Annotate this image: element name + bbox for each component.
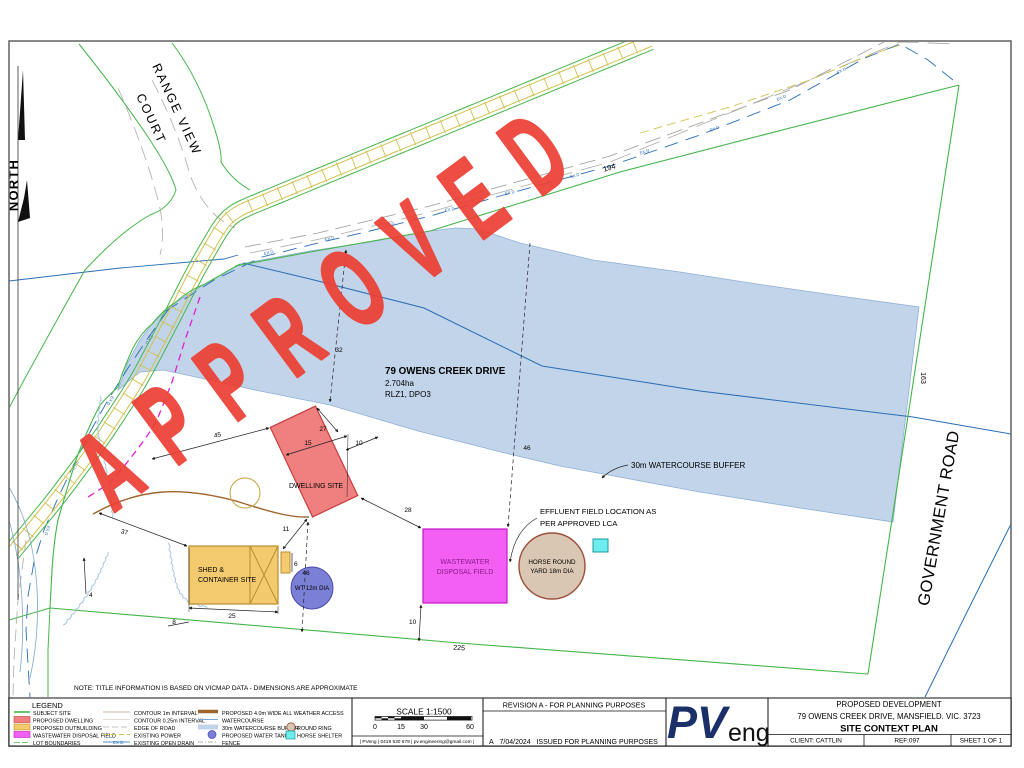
svg-text:REF:097: REF:097 — [894, 738, 920, 745]
svg-text:NOTE: TITLE INFORMATION IS BAS: NOTE: TITLE INFORMATION IS BASED ON VICM… — [74, 685, 358, 692]
svg-text:10: 10 — [355, 440, 363, 447]
svg-text:225: 225 — [453, 645, 465, 653]
svg-text:6: 6 — [294, 561, 298, 568]
svg-text:79 OWENS CREEK DRIVE: 79 OWENS CREEK DRIVE — [385, 366, 506, 377]
svg-text:46: 46 — [523, 445, 531, 452]
svg-text:EXISTING POWER: EXISTING POWER — [134, 734, 181, 740]
svg-text:30m WATERCOURSE BUFFER: 30m WATERCOURSE BUFFER — [631, 461, 745, 470]
svg-text:46: 46 — [302, 570, 310, 577]
svg-text:HORSE SHELTER: HORSE SHELTER — [297, 734, 342, 740]
svg-text:15: 15 — [397, 724, 405, 731]
svg-text:WT 12m DIA: WT 12m DIA — [295, 586, 329, 592]
svg-text:LOT BOUNDARIES: LOT BOUNDARIES — [33, 741, 81, 747]
svg-text:eng: eng — [728, 719, 770, 747]
svg-text:EX D: EX D — [113, 740, 124, 745]
svg-text:ROUND RING: ROUND RING — [297, 726, 332, 732]
svg-text:CONTAINER SITE: CONTAINER SITE — [198, 577, 257, 584]
svg-text:EXISTING OPEN DRAIN: EXISTING OPEN DRAIN — [134, 741, 194, 747]
svg-text:A 7/04/2024 ISSUED FOR PLA: A 7/04/2024 ISSUED FOR PLANNING PURPOSES — [489, 739, 658, 746]
svg-text:YARD 18m DIA: YARD 18m DIA — [530, 568, 574, 575]
svg-text:15: 15 — [304, 440, 312, 447]
svg-text:CONTOUR 1m INTERVAL: CONTOUR 1m INTERVAL — [134, 711, 198, 717]
svg-text:60: 60 — [466, 724, 474, 731]
svg-text:PROPOSED WATER TANK: PROPOSED WATER TANK — [222, 734, 289, 740]
svg-text:CLIENT: CATTLIN: CLIENT: CATTLIN — [790, 738, 842, 745]
svg-text:25: 25 — [228, 613, 236, 620]
svg-text:SHEET 1 OF 1: SHEET 1 OF 1 — [960, 738, 1003, 745]
svg-text:LEGEND: LEGEND — [32, 701, 63, 710]
svg-text:EDGE OF ROAD: EDGE OF ROAD — [134, 726, 175, 732]
svg-text:PER APPROVED LCA: PER APPROVED LCA — [540, 519, 618, 528]
svg-text:HORSE ROUND: HORSE ROUND — [528, 559, 576, 566]
svg-text:4: 4 — [89, 592, 93, 599]
svg-text:REVISION A - FOR PLANNING PURP: REVISION A - FOR PLANNING PURPOSES — [503, 701, 646, 710]
svg-text:RLZ1, DPO3: RLZ1, DPO3 — [385, 390, 431, 399]
svg-text:79 OWENS CREEK DRIVE, MANSFIEL: 79 OWENS CREEK DRIVE, MANSFIELD. VIC. 37… — [797, 712, 980, 721]
svg-text:SHED &: SHED & — [198, 567, 224, 574]
svg-text:30: 30 — [420, 724, 428, 731]
svg-text:28: 28 — [404, 507, 412, 514]
svg-text:SUBJECT SITE: SUBJECT SITE — [33, 711, 71, 717]
svg-text:PROPOSED 4.0m WIDE ALL WEATHER: PROPOSED 4.0m WIDE ALL WEATHER ACCESS — [222, 711, 344, 717]
svg-text:| PVeng | 0419 530 679 | pv.: | PVeng | 0419 530 679 | pv.engineering@… — [360, 739, 474, 745]
svg-text:PROPOSED OUTBUILDING: PROPOSED OUTBUILDING — [33, 726, 102, 732]
svg-text:PV: PV — [667, 697, 731, 748]
svg-text:SCALE 1:1500: SCALE 1:1500 — [396, 707, 452, 717]
svg-text:SITE CONTEXT PLAN: SITE CONTEXT PLAN — [840, 724, 938, 735]
svg-text:11: 11 — [283, 526, 290, 533]
svg-text:WATERCOURSE: WATERCOURSE — [222, 719, 264, 725]
svg-text:8: 8 — [172, 619, 176, 626]
svg-text:EFFLUENT FIELD LOCATION AS: EFFLUENT FIELD LOCATION AS — [540, 507, 656, 516]
svg-text:10: 10 — [409, 619, 417, 626]
svg-text:FENCE: FENCE — [222, 741, 241, 747]
svg-text:163: 163 — [919, 372, 926, 384]
svg-text:PROPOSED DWELLING: PROPOSED DWELLING — [33, 719, 93, 725]
svg-text:WASTEWATER: WASTEWATER — [440, 559, 489, 566]
svg-text:DISPOSAL FIELD: DISPOSAL FIELD — [437, 569, 494, 576]
svg-text:27: 27 — [319, 426, 327, 433]
svg-text:2.704ha: 2.704ha — [385, 379, 414, 388]
svg-text:CONTOUR 0.25m INTERVAL: CONTOUR 0.25m INTERVAL — [134, 719, 205, 725]
svg-text:0: 0 — [373, 724, 377, 731]
svg-text:PROPOSED DEVELOPMENT: PROPOSED DEVELOPMENT — [836, 700, 942, 709]
svg-text:DWELLING SITE: DWELLING SITE — [289, 483, 343, 490]
